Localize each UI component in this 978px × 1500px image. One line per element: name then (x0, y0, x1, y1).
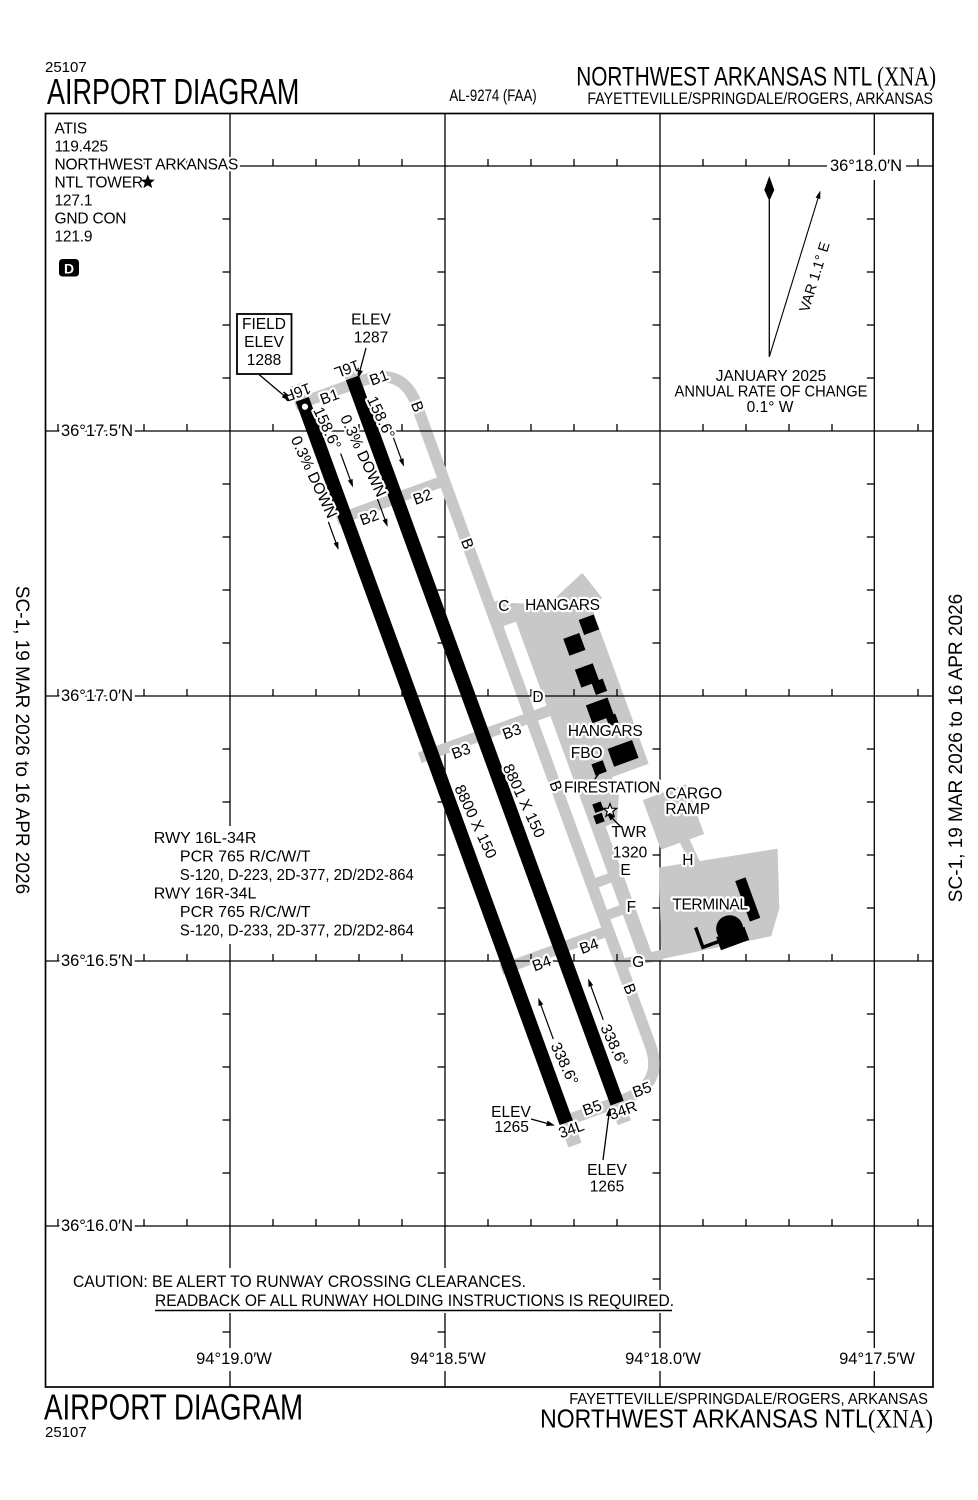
svg-text:ELEV: ELEV (587, 1162, 627, 1179)
svg-text:1265: 1265 (494, 1119, 528, 1136)
svg-text:F: F (627, 899, 636, 916)
svg-text:HANGARS: HANGARS (525, 597, 600, 614)
svg-text:94°19.0′W: 94°19.0′W (196, 1350, 272, 1368)
svg-text:TWR: TWR (611, 824, 646, 841)
svg-text:RAMP: RAMP (665, 801, 710, 818)
svg-text:RWY 16L-34R: RWY 16L-34R (154, 830, 257, 847)
svg-text:SC-1, 19 MAR 2026 to 16 APR: SC-1, 19 MAR 2026 to 16 APR 2026 (11, 586, 32, 894)
svg-text:AIRPORT DIAGRAM: AIRPORT DIAGRAM (47, 71, 299, 112)
svg-text:NORTHWEST ARKANSAS: NORTHWEST ARKANSAS (55, 157, 239, 174)
svg-text:FIRESTATION: FIRESTATION (564, 780, 660, 797)
svg-text:94°18.5′W: 94°18.5′W (410, 1350, 486, 1368)
svg-text:1320: 1320 (613, 845, 648, 862)
svg-text:S-120, D-223, 2D-377, 2D/2D2-8: S-120, D-223, 2D-377, 2D/2D2-864 (180, 867, 414, 885)
svg-text:PCR 765 R/C/W/T: PCR 765 R/C/W/T (180, 904, 311, 921)
svg-text:121.9: 121.9 (55, 229, 93, 246)
svg-text:D: D (64, 261, 74, 277)
svg-text:READBACK OF ALL RUNWAY HOLDING: READBACK OF ALL RUNWAY HOLDING INSTRUCTI… (155, 1291, 674, 1310)
svg-text:25107: 25107 (45, 1424, 87, 1441)
svg-text:AIRPORT DIAGRAM: AIRPORT DIAGRAM (44, 1387, 303, 1427)
svg-text:D: D (532, 689, 543, 706)
svg-text:PCR 765 R/C/W/T: PCR 765 R/C/W/T (180, 849, 311, 866)
svg-text:ELEV: ELEV (244, 334, 284, 351)
svg-text:G: G (632, 954, 644, 971)
svg-text:NTL TOWER: NTL TOWER (55, 175, 143, 192)
svg-text:S-120, D-233, 2D-377, 2D/2D2-8: S-120, D-233, 2D-377, 2D/2D2-864 (180, 922, 414, 940)
svg-text:127.1: 127.1 (55, 193, 93, 210)
svg-text:36°17.5′N: 36°17.5′N (61, 422, 133, 440)
svg-text:ANNUAL RATE OF CHANGE: ANNUAL RATE OF CHANGE (675, 383, 868, 400)
svg-text:FIELD: FIELD (242, 316, 286, 333)
svg-text:GND CON: GND CON (55, 211, 127, 228)
svg-text:RWY 16R-34L: RWY 16R-34L (154, 886, 257, 903)
svg-text:FAYETTEVILLE/SPRINGDALE/ROGERS: FAYETTEVILLE/SPRINGDALE/ROGERS, ARKANSAS (587, 90, 933, 108)
svg-text:ELEV: ELEV (351, 312, 391, 329)
svg-text:94°17.5′W: 94°17.5′W (839, 1350, 915, 1368)
svg-text:H: H (682, 852, 693, 869)
svg-text:SC-1, 19 MAR 2026 to 16 APR: SC-1, 19 MAR 2026 to 16 APR 2026 (946, 594, 967, 902)
svg-text:C: C (498, 598, 509, 615)
svg-text:NORTHWEST ARKANSAS NTL (XNA): NORTHWEST ARKANSAS NTL (XNA) (576, 62, 936, 92)
svg-text:36°16.0′N: 36°16.0′N (61, 1217, 133, 1235)
svg-text:1287: 1287 (354, 330, 388, 347)
svg-text:CARGO: CARGO (665, 786, 722, 803)
svg-text:1265: 1265 (590, 1179, 624, 1196)
svg-text:1288: 1288 (247, 352, 281, 369)
svg-text:36°18.0′N: 36°18.0′N (830, 157, 902, 175)
svg-text:36°16.5′N: 36°16.5′N (61, 952, 133, 970)
svg-text:94°18.0′W: 94°18.0′W (625, 1350, 701, 1368)
svg-text:NORTHWEST ARKANSAS NTL(XNA): NORTHWEST ARKANSAS NTL(XNA) (540, 1405, 933, 1434)
svg-text:FBO: FBO (571, 745, 603, 762)
svg-text:TERMINAL: TERMINAL (672, 897, 748, 914)
svg-text:E: E (620, 862, 630, 879)
svg-text:ATIS: ATIS (55, 121, 88, 138)
svg-text:CAUTION: BE ALERT TO RUNWAY CR: CAUTION: BE ALERT TO RUNWAY CROSSING CLE… (73, 1272, 526, 1291)
svg-text:119.425: 119.425 (55, 139, 108, 156)
svg-text:0.1° W: 0.1° W (747, 399, 794, 416)
svg-text:AL-9274 (FAA): AL-9274 (FAA) (449, 87, 536, 106)
svg-text:HANGARS: HANGARS (568, 723, 643, 740)
svg-text:36°17.0′N: 36°17.0′N (61, 687, 133, 705)
